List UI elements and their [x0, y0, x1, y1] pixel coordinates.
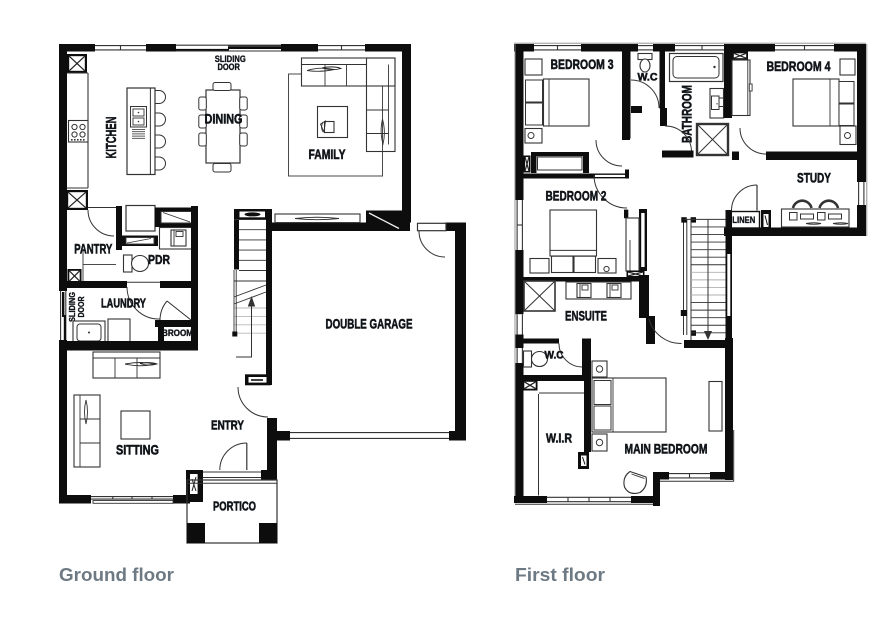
svg-text:W.C: W.C [545, 349, 564, 361]
svg-text:STUDY: STUDY [797, 171, 831, 186]
svg-text:PORTICO: PORTICO [213, 499, 256, 513]
svg-text:KITCHEN: KITCHEN [103, 117, 120, 159]
svg-text:Ground floor: Ground floor [59, 564, 174, 585]
svg-text:DOOR: DOOR [77, 296, 86, 317]
svg-text:DOUBLE GARAGE: DOUBLE GARAGE [326, 317, 413, 332]
svg-text:FAMILY: FAMILY [309, 147, 346, 162]
svg-text:ENSUITE: ENSUITE [565, 309, 607, 324]
svg-text:BATHROOM: BATHROOM [680, 85, 695, 143]
svg-text:LAUNDRY: LAUNDRY [101, 296, 146, 310]
svg-text:PANTRY: PANTRY [74, 241, 112, 256]
svg-text:PDR: PDR [148, 253, 170, 267]
svg-text:BROOM: BROOM [162, 328, 193, 338]
svg-text:W.I.R: W.I.R [546, 431, 572, 445]
svg-text:BEDROOM 4: BEDROOM 4 [767, 59, 831, 74]
svg-text:SITTING: SITTING [116, 443, 159, 458]
svg-text:DOOR: DOOR [217, 62, 240, 72]
svg-text:LINEN: LINEN [732, 215, 755, 226]
svg-text:ENTRY: ENTRY [211, 418, 245, 432]
svg-text:BEDROOM 3: BEDROOM 3 [551, 57, 614, 72]
svg-text:DINING: DINING [205, 112, 243, 127]
svg-text:SLIDING: SLIDING [68, 292, 77, 322]
svg-text:BEDROOM 2: BEDROOM 2 [546, 189, 607, 204]
svg-text:MAIN BEDROOM: MAIN BEDROOM [625, 442, 708, 457]
svg-text:First floor: First floor [515, 564, 605, 585]
